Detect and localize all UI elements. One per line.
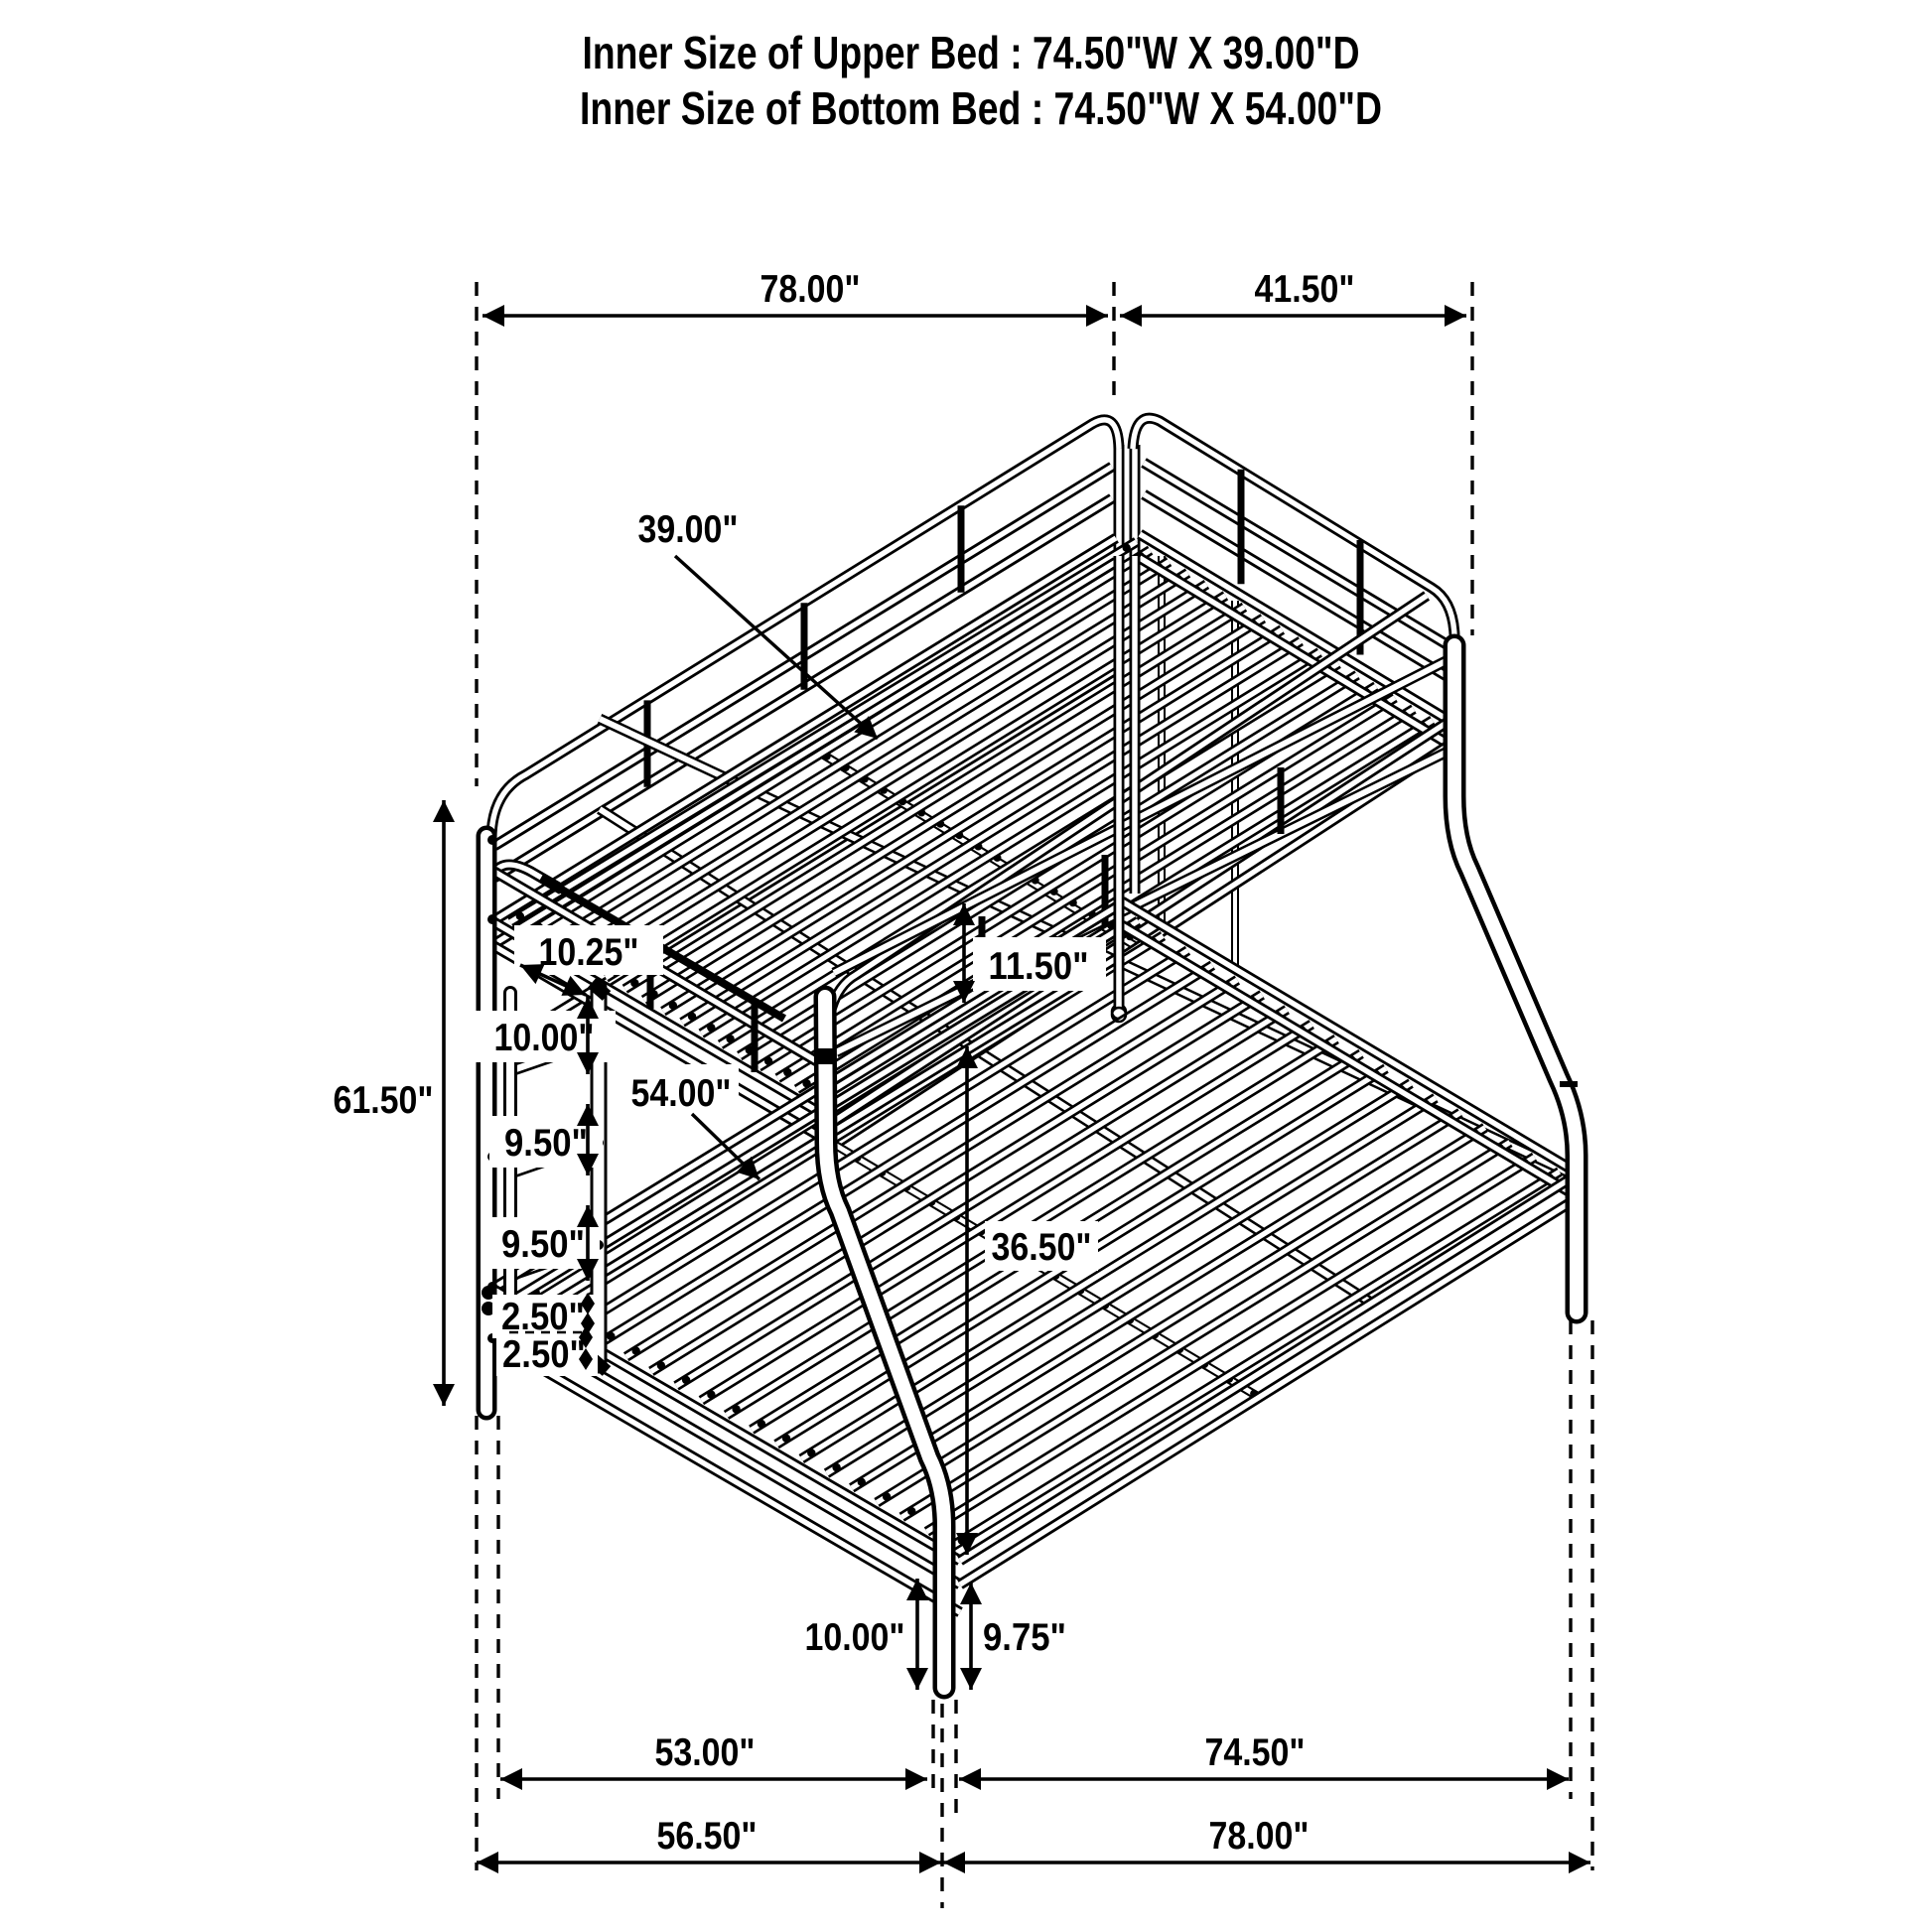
svg-text:78.00": 78.00" [1209,1815,1310,1858]
svg-text:39.00": 39.00" [638,508,739,551]
svg-text:9.50": 9.50" [501,1223,585,1266]
svg-text:Inner Size of Bottom Bed : 74.: Inner Size of Bottom Bed : 74.50"W X 54.… [580,82,1382,134]
svg-text:10.25": 10.25" [539,931,639,974]
svg-text:56.50": 56.50" [657,1815,758,1858]
svg-text:9.75": 9.75" [983,1616,1066,1659]
svg-text:2.50": 2.50" [502,1333,586,1376]
svg-text:74.50": 74.50" [1205,1731,1306,1774]
svg-text:11.50": 11.50" [989,945,1089,988]
svg-text:61.50": 61.50" [334,1079,434,1122]
svg-text:53.00": 53.00" [655,1731,756,1774]
svg-text:9.50": 9.50" [504,1122,588,1165]
svg-text:10.00": 10.00" [805,1616,905,1659]
svg-text:41.50": 41.50" [1255,268,1355,311]
svg-text:36.50": 36.50" [992,1226,1092,1269]
svg-text:78.00": 78.00" [760,268,861,311]
svg-text:Inner Size of Upper Bed : 74.5: Inner Size of Upper Bed : 74.50"W X 39.0… [583,27,1360,78]
svg-text:54.00": 54.00" [631,1072,732,1115]
